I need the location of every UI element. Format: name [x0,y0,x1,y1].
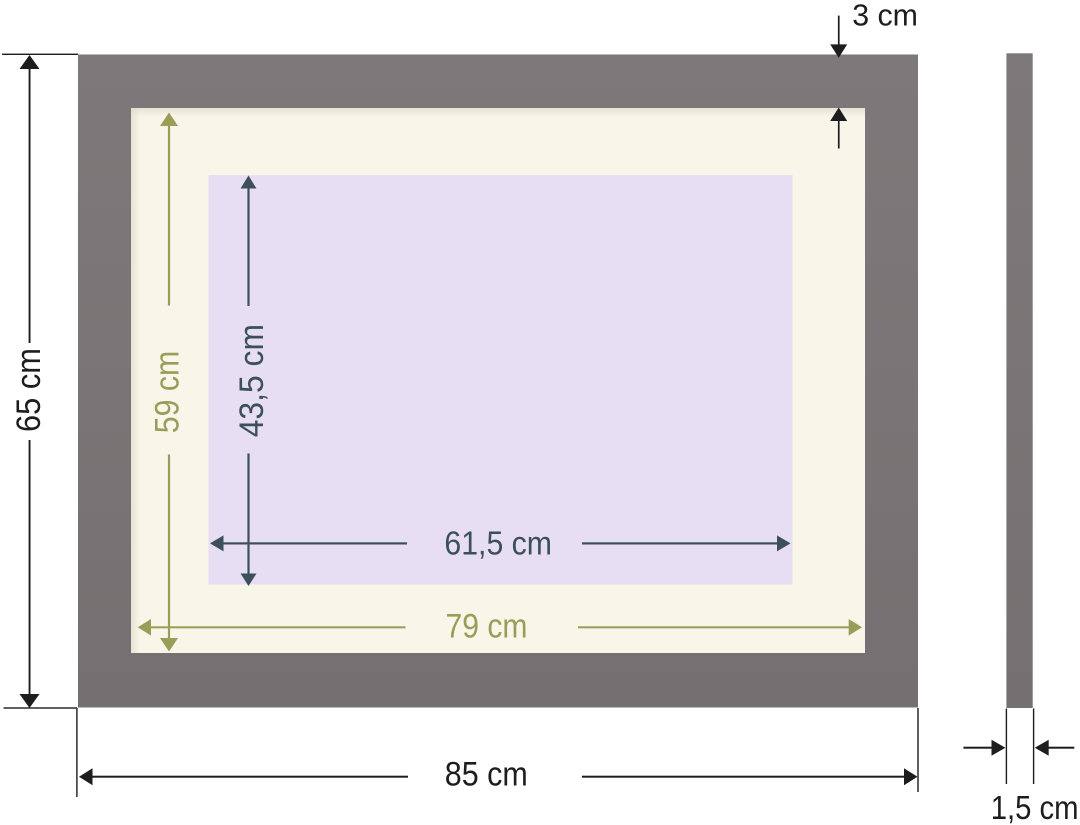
svg-text:59 cm: 59 cm [149,351,187,434]
svg-text:43,5 cm: 43,5 cm [233,324,271,437]
svg-text:1,5 cm: 1,5 cm [991,789,1079,825]
svg-text:79 cm: 79 cm [446,608,528,646]
svg-text:85 cm: 85 cm [445,756,528,794]
svg-text:65 cm: 65 cm [10,348,48,432]
svg-text:61,5 cm: 61,5 cm [444,524,552,561]
svg-text:3 cm: 3 cm [852,0,918,33]
